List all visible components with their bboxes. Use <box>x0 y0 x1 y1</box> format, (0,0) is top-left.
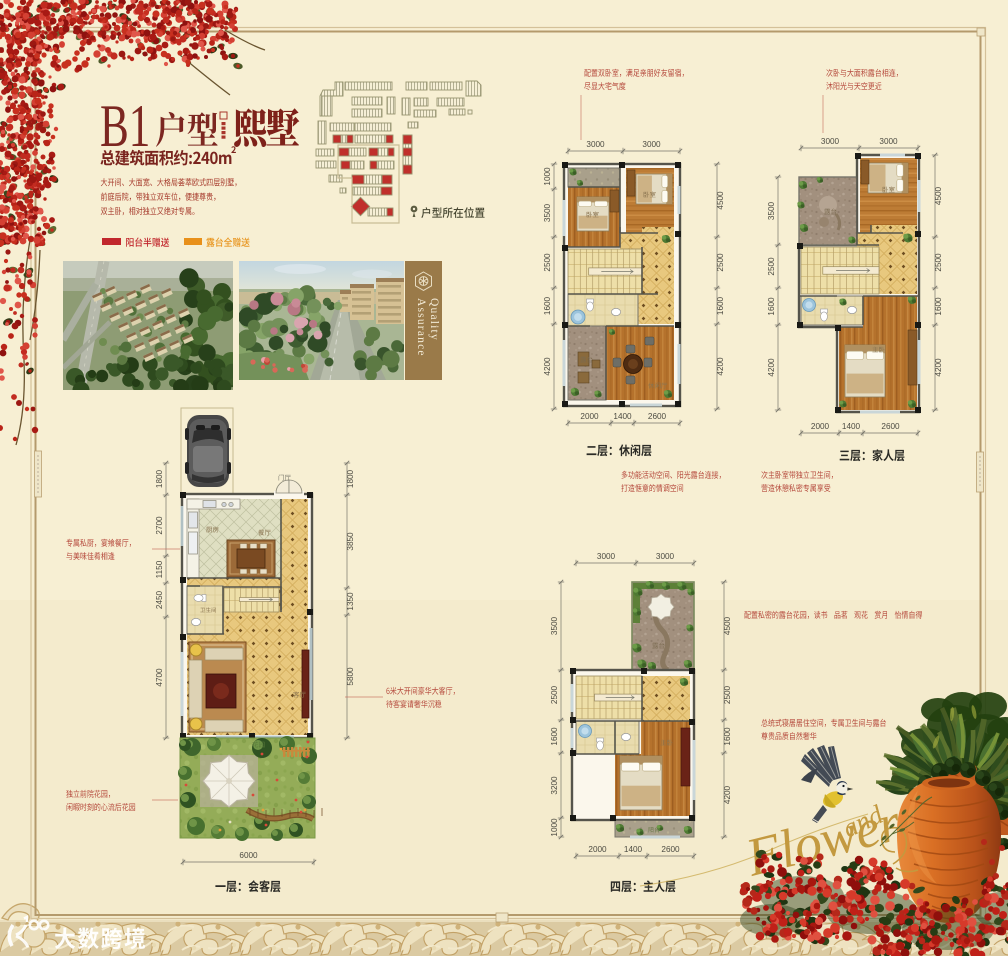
svg-text:3000: 3000 <box>656 552 675 561</box>
svg-text:3500: 3500 <box>550 616 559 635</box>
svg-text:1000: 1000 <box>550 818 559 837</box>
svg-text:3000: 3000 <box>597 552 616 561</box>
svg-text:2500: 2500 <box>716 253 725 272</box>
svg-text:4200: 4200 <box>716 357 725 376</box>
svg-text:B1: B1 <box>100 93 150 160</box>
svg-text:1800: 1800 <box>346 469 355 488</box>
svg-text:1600: 1600 <box>716 296 725 315</box>
svg-text:2500: 2500 <box>934 253 943 272</box>
svg-text:1600: 1600 <box>934 297 943 316</box>
svg-text:1000: 1000 <box>543 167 552 186</box>
svg-text:1400: 1400 <box>624 845 643 854</box>
svg-text:1600: 1600 <box>723 727 732 746</box>
svg-text:Assurance: Assurance <box>415 298 427 357</box>
svg-text:3500: 3500 <box>767 201 776 220</box>
svg-text:4700: 4700 <box>155 668 164 687</box>
svg-text:3000: 3000 <box>586 140 605 149</box>
svg-text:Quality: Quality <box>428 298 440 341</box>
svg-text:1600: 1600 <box>767 297 776 316</box>
svg-text:5800: 5800 <box>346 667 355 686</box>
svg-text:2500: 2500 <box>543 253 552 272</box>
svg-text:4200: 4200 <box>543 357 552 376</box>
svg-text:2700: 2700 <box>155 516 164 535</box>
svg-text:6000: 6000 <box>239 851 258 860</box>
svg-text:1350: 1350 <box>346 592 355 611</box>
svg-text:4200: 4200 <box>723 785 732 804</box>
svg-text:3200: 3200 <box>550 776 559 795</box>
svg-text:1800: 1800 <box>155 469 164 488</box>
svg-text:2000: 2000 <box>811 422 830 431</box>
svg-text:2600: 2600 <box>661 845 680 854</box>
svg-text:4500: 4500 <box>934 186 943 205</box>
svg-text:3000: 3000 <box>821 137 840 146</box>
svg-text:2000: 2000 <box>588 845 607 854</box>
svg-text:2500: 2500 <box>723 685 732 704</box>
svg-text:4500: 4500 <box>723 616 732 635</box>
svg-text:2450: 2450 <box>155 590 164 609</box>
svg-text:4200: 4200 <box>934 358 943 377</box>
svg-text:4200: 4200 <box>767 358 776 377</box>
svg-text:2000: 2000 <box>580 412 599 421</box>
svg-text:1400: 1400 <box>613 412 632 421</box>
svg-text:1600: 1600 <box>543 296 552 315</box>
svg-text:2500: 2500 <box>767 257 776 276</box>
svg-text:1150: 1150 <box>155 560 164 578</box>
svg-text:3850: 3850 <box>346 532 355 551</box>
svg-text:3000: 3000 <box>879 137 898 146</box>
svg-text:2600: 2600 <box>648 412 667 421</box>
svg-text:1600: 1600 <box>550 727 559 746</box>
svg-text:1400: 1400 <box>842 422 861 431</box>
svg-text:2500: 2500 <box>550 685 559 704</box>
svg-text:3000: 3000 <box>642 140 661 149</box>
svg-text:4500: 4500 <box>716 191 725 210</box>
svg-text:2600: 2600 <box>881 422 900 431</box>
svg-text:3500: 3500 <box>543 203 552 222</box>
